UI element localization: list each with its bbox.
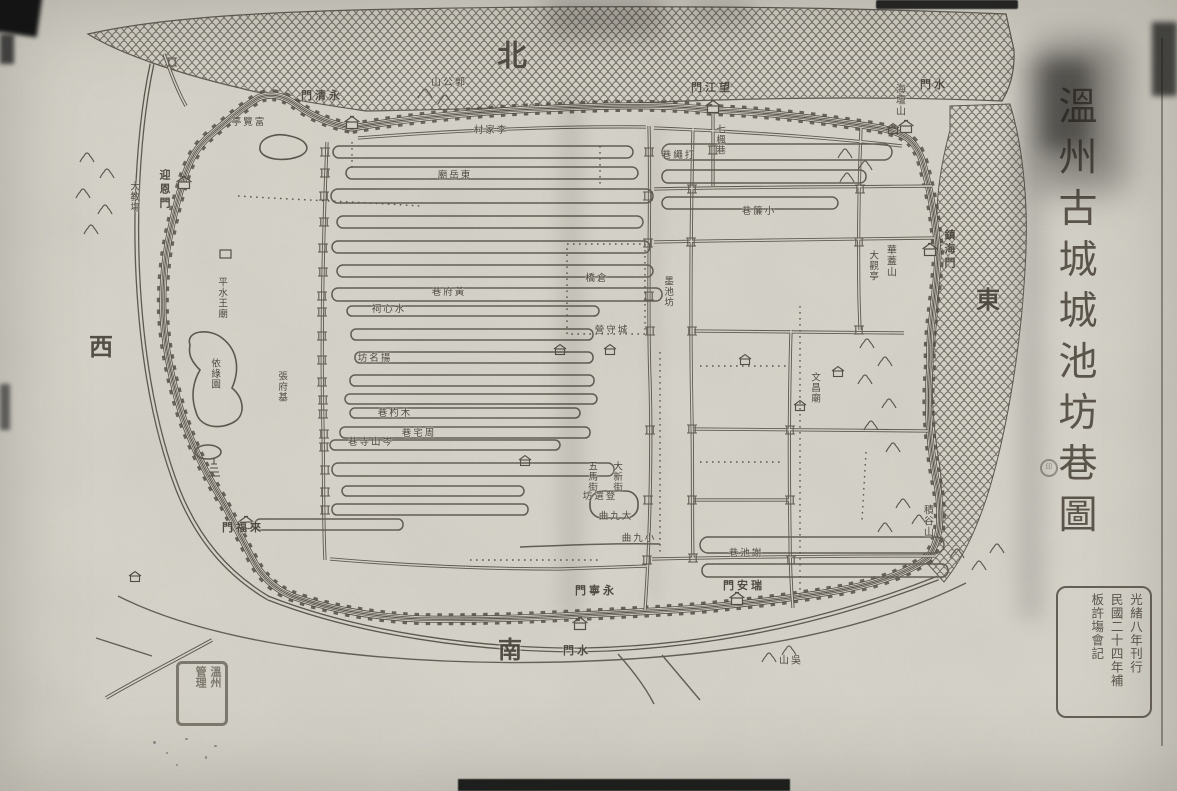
map-label: 大新街	[611, 461, 621, 493]
colophon-column: 民國二十四年補	[1105, 593, 1124, 711]
title-character: 池	[1058, 337, 1097, 388]
map-sheet: 溫州古城城池坊巷圖 光緒八年刊行民國二十四年補板許塲會記 印 溫州管理 北西南東…	[0, 0, 1177, 791]
map-label: 打繩巷	[662, 151, 697, 161]
map-title: 溫州古城城池坊巷圖	[1058, 82, 1097, 541]
map-label: 城守營	[595, 326, 630, 336]
title-character: 坊	[1058, 388, 1097, 439]
title-character: 古	[1058, 184, 1097, 235]
map-label: 小簾巷	[742, 207, 777, 217]
gate-label: 瑞安門	[723, 581, 765, 593]
map-label: 依綠園	[209, 358, 219, 390]
title-character: 圖	[1058, 490, 1097, 541]
map-label: 謝池巷	[729, 549, 764, 559]
compass-label: 東	[976, 289, 1000, 315]
map-label: 木杓巷	[378, 409, 413, 419]
collection-seal: 溫州管理	[176, 661, 228, 726]
map-label: 積谷山	[921, 505, 932, 538]
gate-label: 來福門	[222, 523, 264, 535]
gate-label: 迎恩門	[157, 169, 169, 211]
map-label: 周宅巷	[402, 429, 437, 439]
map-label: 岑山寺巷	[348, 438, 394, 448]
seal-column: 管理	[192, 666, 207, 721]
map-label: 文昌廟	[809, 372, 819, 404]
map-label: 墨池坊	[662, 276, 672, 308]
sheet-edge-line	[1161, 38, 1163, 746]
map-label: 李家村	[474, 126, 509, 136]
title-character: 溫	[1058, 82, 1097, 133]
round-stamp: 印	[1040, 459, 1058, 477]
colophon-box: 光緒八年刊行民國二十四年補板許塲會記	[1056, 586, 1152, 718]
colophon-column: 板許塲會記	[1086, 593, 1105, 711]
map-label: 張府基	[276, 371, 286, 403]
title-character: 城	[1058, 235, 1097, 286]
map-label: 七楓巷	[714, 124, 724, 156]
compass-label: 北	[497, 41, 527, 73]
title-character: 巷	[1058, 439, 1097, 490]
title-character: 城	[1058, 286, 1097, 337]
gate-label: 水門	[920, 80, 948, 92]
map-label: 平水王廟	[216, 277, 226, 319]
map-label: 東岳廟	[438, 171, 473, 181]
gate-label: 水門	[563, 646, 591, 658]
compass-label: 南	[498, 639, 522, 665]
map-label: 富覽亭	[232, 118, 267, 128]
title-character: 州	[1058, 133, 1097, 184]
map-label: 小九曲	[622, 534, 657, 544]
map-label: 華蓋山	[884, 245, 895, 278]
gate-label: 永寧門	[575, 586, 617, 598]
map-label: 大九曲	[599, 512, 634, 522]
map-label: 郭公山	[431, 79, 467, 90]
seal-column: 溫州	[207, 666, 222, 721]
gate-label: 望江門	[691, 83, 733, 95]
colophon-column: 光緒八年刊行	[1125, 593, 1144, 711]
map-label: 五馬街	[586, 461, 596, 493]
gate-label: 鎮海門	[942, 229, 954, 271]
map-label: 揚名坊	[358, 354, 393, 364]
map-label: 黃府巷	[432, 288, 467, 298]
map-label: 水心祠	[372, 305, 407, 315]
map-label: 登選坊	[583, 492, 618, 502]
gate-label: 永清門	[301, 91, 343, 103]
map-label: 大觀亭	[867, 250, 877, 282]
compass-label: 西	[89, 336, 113, 362]
map-label: 海壇山	[893, 84, 904, 117]
map-label: 倉橋	[585, 274, 608, 284]
map-label: 吳山	[779, 657, 803, 668]
map-label: 大教塲	[128, 181, 138, 213]
